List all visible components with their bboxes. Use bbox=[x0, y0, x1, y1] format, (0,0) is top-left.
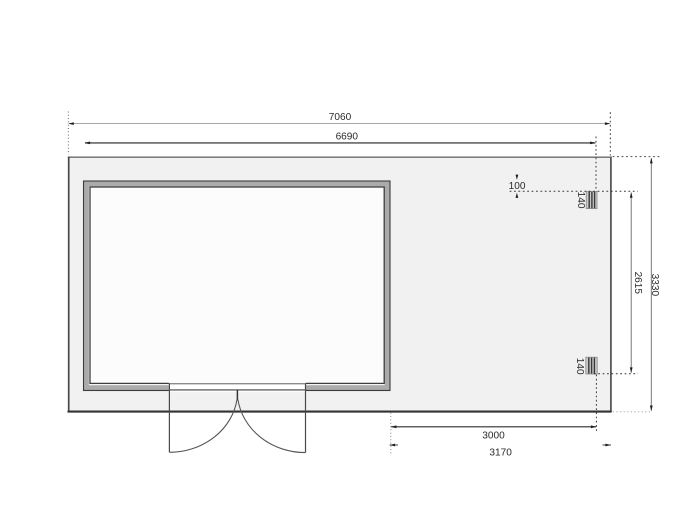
svg-text:140: 140 bbox=[574, 358, 585, 375]
svg-text:3330: 3330 bbox=[649, 274, 660, 297]
svg-text:7060: 7060 bbox=[329, 112, 352, 123]
svg-text:140: 140 bbox=[575, 192, 586, 209]
svg-text:2615: 2615 bbox=[632, 272, 643, 295]
svg-text:3170: 3170 bbox=[489, 448, 512, 459]
svg-text:6690: 6690 bbox=[336, 132, 359, 143]
svg-text:100: 100 bbox=[509, 181, 526, 192]
svg-text:3000: 3000 bbox=[482, 431, 505, 442]
